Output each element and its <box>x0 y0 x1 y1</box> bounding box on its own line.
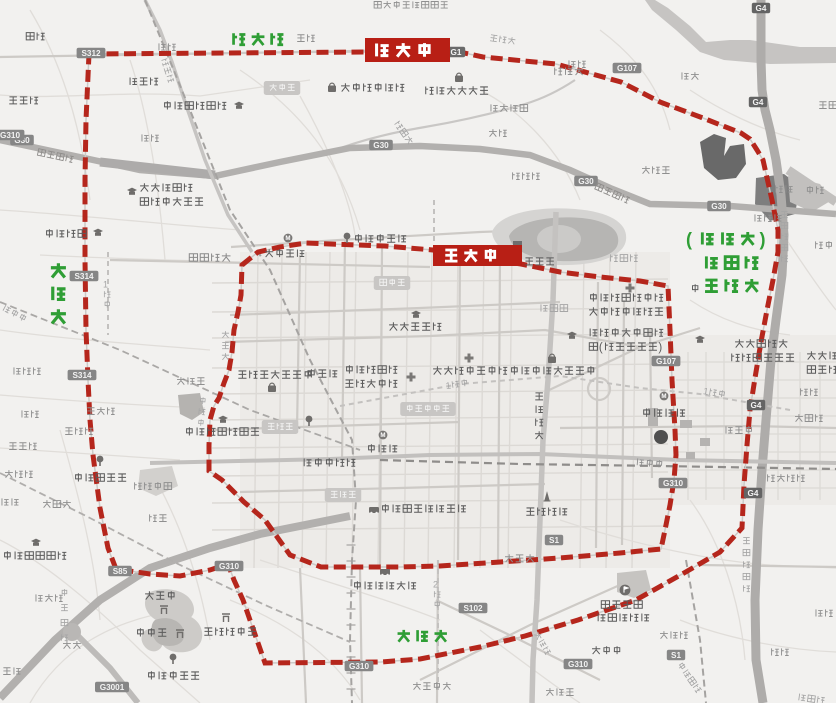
svg-text:G4: G4 <box>756 4 767 13</box>
svg-text:(: ( <box>686 229 692 249</box>
svg-text:G4: G4 <box>751 401 762 410</box>
svg-text:1: 1 <box>103 280 108 290</box>
svg-text:M: M <box>380 432 385 439</box>
svg-text:G107: G107 <box>656 357 676 366</box>
svg-text:M: M <box>661 393 666 400</box>
svg-text:S314: S314 <box>74 272 94 281</box>
svg-text:S85: S85 <box>113 567 128 576</box>
svg-text:S312: S312 <box>81 49 101 58</box>
svg-text:G310: G310 <box>663 479 683 488</box>
svg-text:M: M <box>285 235 290 242</box>
svg-text:G3001: G3001 <box>100 683 125 692</box>
svg-text:G1: G1 <box>451 48 462 57</box>
svg-text:S314: S314 <box>72 371 92 380</box>
svg-text:(: ( <box>599 342 603 354</box>
svg-text:S1: S1 <box>671 651 681 660</box>
svg-text:): ) <box>658 342 662 354</box>
svg-text:G30: G30 <box>373 141 389 150</box>
svg-text:G107: G107 <box>617 64 637 73</box>
svg-text:G4: G4 <box>748 489 759 498</box>
svg-text:G30: G30 <box>578 177 594 186</box>
svg-text:2: 2 <box>433 580 438 590</box>
svg-text:G4: G4 <box>753 98 764 107</box>
svg-text:S102: S102 <box>463 604 483 613</box>
svg-text:G30: G30 <box>711 202 727 211</box>
svg-text:G310: G310 <box>0 131 20 140</box>
svg-text:G310: G310 <box>349 662 369 671</box>
svg-text:G310: G310 <box>568 660 588 669</box>
svg-text:S1: S1 <box>549 536 559 545</box>
svg-text:G310: G310 <box>219 562 239 571</box>
svg-text:): ) <box>759 229 765 249</box>
